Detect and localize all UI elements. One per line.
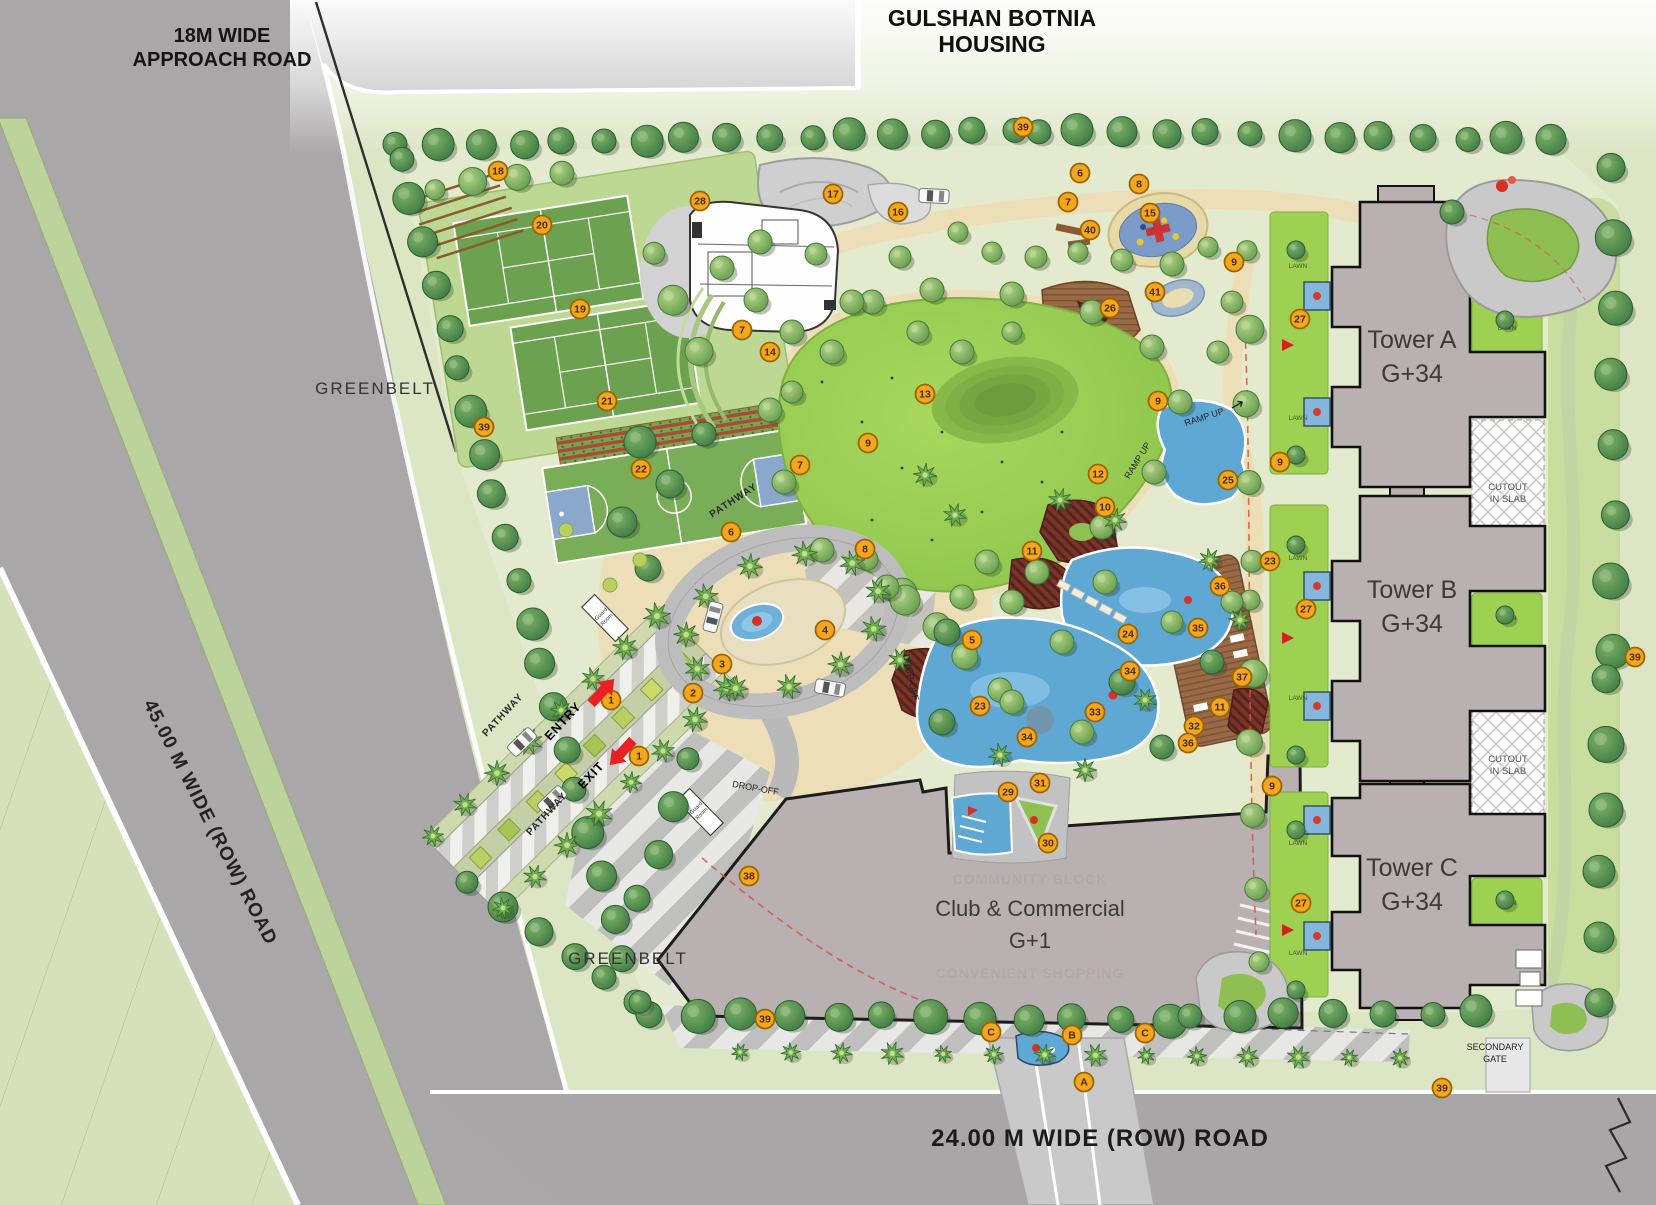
club-floors: G+1 [1009, 928, 1051, 953]
marker-14: 14 [761, 343, 780, 362]
marker-39: 39 [475, 418, 494, 437]
marker-39: 39 [1014, 118, 1033, 137]
svg-text:39: 39 [1017, 122, 1029, 134]
svg-text:12: 12 [1092, 469, 1104, 481]
club-watermark-bottom: CONVENIENT SHOPPING [936, 965, 1125, 981]
marker-27: 27 [1297, 600, 1316, 619]
svg-text:11: 11 [1214, 702, 1225, 714]
marker-24: 24 [1119, 625, 1138, 644]
svg-text:LAWN: LAWN [1289, 415, 1308, 422]
marker-22: 22 [632, 460, 651, 479]
marker-7: 7 [733, 321, 752, 340]
marker-18: 18 [489, 162, 508, 181]
svg-text:14: 14 [764, 347, 776, 359]
marker-A: A [1075, 1073, 1094, 1092]
svg-text:7: 7 [797, 460, 803, 472]
marker-34: 34 [1121, 662, 1140, 681]
secondary-gate-label-1: SECONDARY [1467, 1042, 1524, 1052]
svg-text:38: 38 [743, 871, 755, 883]
marker-39: 39 [756, 1010, 775, 1029]
marker-27: 27 [1292, 894, 1311, 913]
marker-7: 7 [1059, 193, 1078, 212]
tower-a-floors: G+34 [1381, 360, 1443, 388]
svg-text:23: 23 [974, 701, 986, 713]
svg-text:26: 26 [1104, 303, 1116, 315]
marker-31: 31 [1031, 774, 1050, 793]
svg-text:18: 18 [492, 166, 504, 178]
site-plan-svg: Guard Room Guard Room [0, 0, 1656, 1205]
marker-36: 36 [1211, 577, 1230, 596]
marker-1: 1 [630, 747, 649, 766]
svg-text:5: 5 [969, 635, 975, 647]
svg-text:39: 39 [1629, 652, 1641, 664]
svg-text:9: 9 [1155, 396, 1161, 408]
project-title-line1: GULSHAN BOTNIA [888, 5, 1096, 31]
svg-text:16: 16 [892, 207, 904, 219]
svg-text:6: 6 [728, 527, 734, 539]
svg-text:27: 27 [1295, 898, 1307, 910]
marker-10: 10 [1096, 498, 1115, 517]
marker-40: 40 [1081, 221, 1100, 240]
secondary-gate-label-2: GATE [1483, 1054, 1507, 1064]
site-plan: Guard Room Guard Room [0, 0, 1656, 1205]
marker-11: 11 [1023, 542, 1042, 561]
marker-26: 26 [1101, 299, 1120, 318]
svg-text:4: 4 [822, 625, 828, 637]
svg-text:23: 23 [1264, 556, 1276, 568]
svg-text:27: 27 [1300, 604, 1312, 616]
svg-text:LAWN: LAWN [1289, 263, 1308, 270]
marker-27: 27 [1291, 310, 1310, 329]
svg-text:LAWN: LAWN [1289, 695, 1308, 702]
svg-text:25: 25 [1222, 475, 1234, 487]
svg-text:C: C [1141, 1028, 1149, 1040]
tower-c-name: Tower C [1366, 854, 1458, 882]
svg-text:33: 33 [1089, 707, 1101, 719]
svg-text:17: 17 [827, 189, 839, 201]
svg-text:10: 10 [1099, 502, 1111, 514]
svg-text:35: 35 [1192, 623, 1204, 635]
svg-text:A: A [1080, 1077, 1088, 1089]
marker-9: 9 [1271, 453, 1290, 472]
marker-36: 36 [1179, 734, 1198, 753]
marker-8: 8 [1130, 175, 1149, 194]
greenbelt-label-1: GREENBELT [315, 379, 435, 398]
svg-text:21: 21 [601, 396, 613, 408]
club-name: Club & Commercial [935, 896, 1125, 921]
marker-2: 2 [684, 684, 703, 703]
tower-c-floors: G+34 [1381, 888, 1443, 916]
svg-text:LAWN: LAWN [1289, 950, 1308, 957]
marker-39: 39 [1626, 648, 1645, 667]
svg-text:34: 34 [1124, 666, 1136, 678]
svg-text:9: 9 [1277, 457, 1283, 469]
svg-text:39: 39 [478, 422, 490, 434]
svg-text:31: 31 [1034, 778, 1046, 790]
svg-text:22: 22 [635, 464, 647, 476]
marker-28: 28 [691, 192, 710, 211]
greenbelt-label-2: GREENBELT [568, 949, 688, 968]
svg-text:37: 37 [1236, 672, 1248, 684]
tower-a-name: Tower A [1368, 326, 1457, 354]
marker-19: 19 [571, 300, 590, 319]
svg-text:9: 9 [1269, 781, 1275, 793]
marker-B: B [1063, 1026, 1082, 1045]
marker-41: 41 [1146, 283, 1165, 302]
tower-b-name: Tower B [1367, 576, 1457, 604]
svg-text:IN SLAB: IN SLAB [1490, 494, 1526, 505]
svg-text:34: 34 [1021, 732, 1033, 744]
svg-text:24: 24 [1122, 629, 1134, 641]
marker-11: 11 [1211, 698, 1230, 717]
marker-29: 29 [999, 783, 1018, 802]
svg-text:1: 1 [636, 751, 642, 763]
marker-21: 21 [598, 392, 617, 411]
south-road-label: 24.00 M WIDE (ROW) ROAD [931, 1125, 1269, 1152]
svg-text:15: 15 [1144, 208, 1156, 220]
svg-text:41: 41 [1149, 287, 1161, 299]
svg-text:IN SLAB: IN SLAB [1490, 766, 1526, 777]
approach-road-label-2: APPROACH ROAD [133, 49, 312, 71]
svg-text:6: 6 [1077, 168, 1083, 180]
svg-text:9: 9 [1231, 257, 1237, 269]
community-building [640, 202, 838, 338]
marker-7: 7 [791, 456, 810, 475]
marker-9: 9 [1225, 253, 1244, 272]
svg-text:20: 20 [536, 220, 548, 232]
svg-text:1: 1 [608, 695, 614, 707]
svg-text:9: 9 [865, 438, 871, 450]
marker-4: 4 [816, 621, 835, 640]
marker-33: 33 [1086, 703, 1105, 722]
marker-6: 6 [1071, 164, 1090, 183]
svg-text:36: 36 [1182, 738, 1194, 750]
marker-3: 3 [713, 655, 732, 674]
club-watermark-top: COMMUNITY BLOCK [953, 871, 1108, 887]
marker-16: 16 [889, 203, 908, 222]
svg-text:13: 13 [919, 389, 931, 401]
cutout-1-label: CUTOUT [1488, 482, 1528, 493]
marker-5: 5 [963, 631, 982, 650]
marker-12: 12 [1089, 465, 1108, 484]
marker-38: 38 [740, 867, 759, 886]
svg-text:19: 19 [574, 304, 586, 316]
marker-20: 20 [533, 216, 552, 235]
marker-9: 9 [1149, 392, 1168, 411]
svg-text:30: 30 [1042, 838, 1054, 850]
marker-25: 25 [1219, 471, 1238, 490]
svg-text:2: 2 [690, 688, 696, 700]
marker-C: C [1136, 1024, 1155, 1043]
svg-text:32: 32 [1188, 721, 1200, 733]
marker-37: 37 [1233, 668, 1252, 687]
svg-text:39: 39 [1436, 1083, 1448, 1095]
car [919, 188, 950, 204]
svg-text:28: 28 [694, 196, 706, 208]
svg-text:11: 11 [1026, 546, 1037, 558]
marker-39: 39 [1433, 1079, 1452, 1098]
marker-13: 13 [916, 385, 935, 404]
project-title-line2: HOUSING [938, 31, 1045, 57]
svg-text:27: 27 [1294, 314, 1306, 326]
svg-text:8: 8 [862, 544, 868, 556]
approach-road-label-1: 18M WIDE [174, 25, 271, 47]
marker-23: 23 [971, 697, 990, 716]
marker-9: 9 [1263, 777, 1282, 796]
svg-text:8: 8 [1136, 179, 1142, 191]
marker-23: 23 [1261, 552, 1280, 571]
tower-b-floors: G+34 [1381, 610, 1443, 638]
svg-text:39: 39 [759, 1014, 771, 1026]
svg-text:3: 3 [719, 659, 725, 671]
marker-15: 15 [1141, 204, 1160, 223]
marker-6: 6 [722, 523, 741, 542]
svg-text:40: 40 [1084, 225, 1096, 237]
marker-17: 17 [824, 185, 843, 204]
marker-34: 34 [1018, 728, 1037, 747]
marker-C: C [982, 1023, 1001, 1042]
cutout-2-label: CUTOUT [1488, 754, 1528, 765]
svg-text:7: 7 [1065, 197, 1071, 209]
svg-text:36: 36 [1214, 581, 1226, 593]
svg-text:7: 7 [739, 325, 745, 337]
svg-text:B: B [1068, 1030, 1076, 1042]
svg-text:C: C [987, 1027, 995, 1039]
marker-9: 9 [859, 434, 878, 453]
marker-8: 8 [856, 540, 875, 559]
marker-35: 35 [1189, 619, 1208, 638]
svg-text:29: 29 [1002, 787, 1014, 799]
marker-30: 30 [1039, 834, 1058, 853]
